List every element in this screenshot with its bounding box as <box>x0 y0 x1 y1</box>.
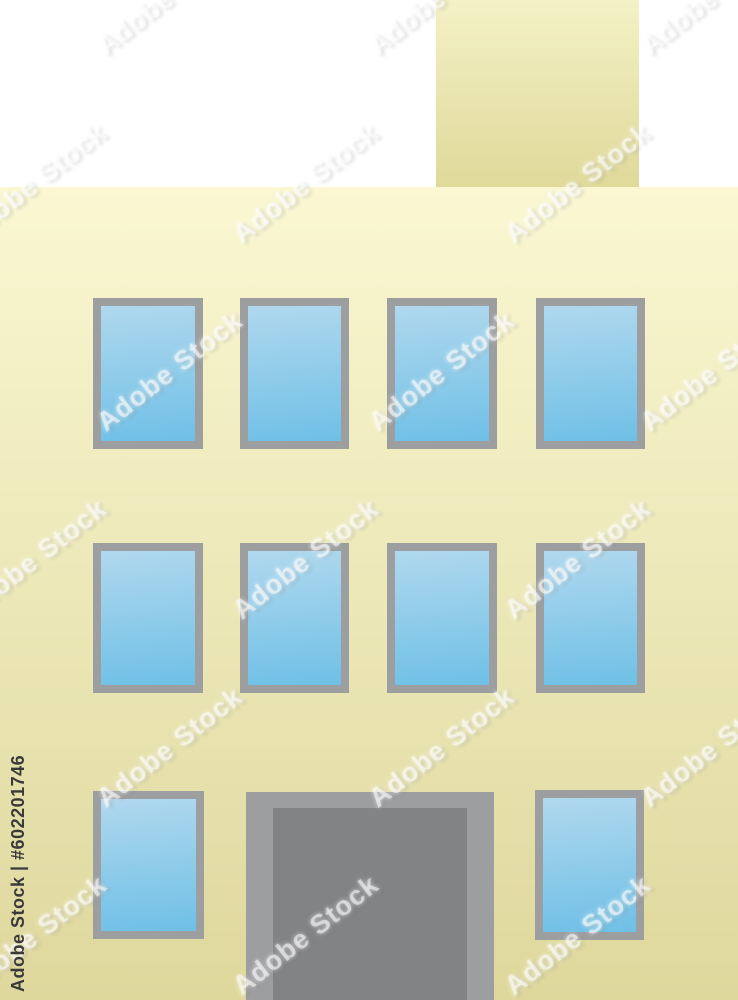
building-window <box>240 543 349 693</box>
building-window-glass <box>248 551 341 685</box>
building-window <box>93 791 204 939</box>
building-window-glass <box>544 551 637 685</box>
building-door-panel <box>273 808 467 1000</box>
building-window-glass <box>544 306 637 441</box>
building-chimney <box>436 0 639 187</box>
building-window-glass <box>248 306 341 441</box>
building-window <box>93 543 203 693</box>
building-window-glass <box>543 798 636 932</box>
building-window-glass <box>101 551 195 685</box>
stock-image-canvas: Adobe StockAdobe StockAdobe StockAdobe S… <box>0 0 738 1000</box>
building-window <box>536 298 645 449</box>
building-window <box>387 543 497 693</box>
building-window-glass <box>101 799 196 931</box>
adobe-stock-watermark-tile: Adobe Stock <box>635 0 738 62</box>
building-door-frame <box>246 792 494 1000</box>
building-window <box>240 298 349 449</box>
stock-id-watermark: Adobe Stock | #602201746 <box>8 755 29 992</box>
building-window <box>387 298 497 449</box>
adobe-stock-watermark-tile: Adobe Stock <box>91 0 249 62</box>
building-window <box>535 790 644 940</box>
building-window-glass <box>395 551 489 685</box>
building-window <box>93 298 203 449</box>
building-window-glass <box>395 306 489 441</box>
building-window <box>536 543 645 693</box>
building-window-glass <box>101 306 195 441</box>
